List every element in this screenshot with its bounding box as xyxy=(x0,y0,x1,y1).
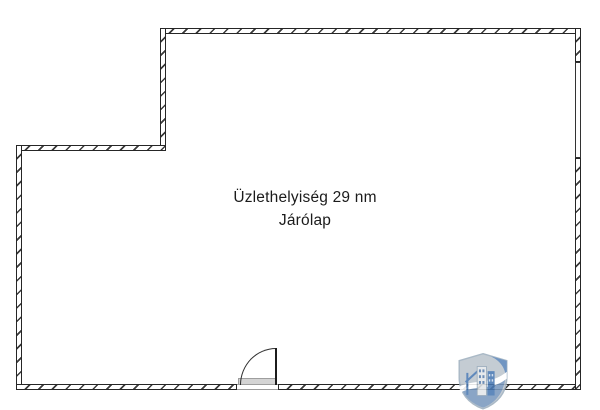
room-label-line1: Üzlethelyiség 29 nm xyxy=(155,186,455,209)
wall-top xyxy=(160,28,581,34)
wall-step-horizontal xyxy=(16,145,166,151)
wall-bottom-left xyxy=(16,384,237,390)
shield-buildings-icon xyxy=(454,352,512,410)
door-leaf xyxy=(275,348,278,385)
wall-right-lower xyxy=(575,158,581,390)
watermark-logo xyxy=(454,352,512,410)
floor-plan-canvas: Üzlethelyiség 29 nm Járólap xyxy=(0,0,600,410)
window-symbol xyxy=(575,62,581,158)
wall-step-vertical xyxy=(160,28,166,151)
wall-left xyxy=(16,145,22,390)
wall-bottom-right xyxy=(278,384,581,390)
wall-right-upper xyxy=(575,28,581,62)
door-swing-arc-icon xyxy=(240,348,276,385)
room-label: Üzlethelyiség 29 nm Járólap xyxy=(155,186,455,232)
room-label-line2: Járólap xyxy=(155,209,455,232)
